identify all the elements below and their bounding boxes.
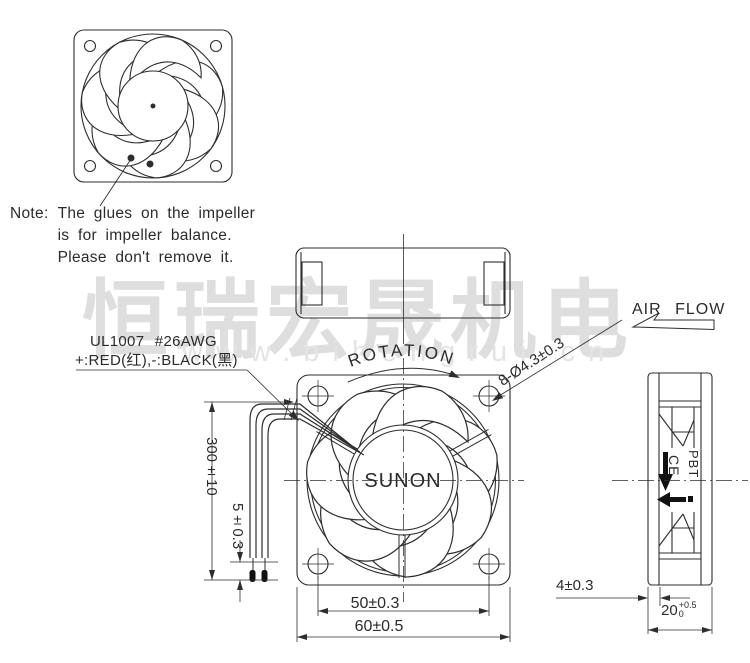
note-block: Note: The glues on the impeller is for i… [10,203,255,269]
brand-label: SUNON [364,470,441,492]
material-label: PBT [686,450,701,478]
note-line-1: The glues on the impeller [58,203,256,225]
note-line-2: is for impeller balance. [58,225,256,247]
air-flow-label: AIR FLOW [632,301,725,319]
dim-depth-value: 20 [661,602,678,619]
dim-depth-label: 20 +0.5 0 [661,601,696,619]
dim-flange-thickness-label: 4±0.3 [556,577,593,594]
rotation-label: ROTATION [345,341,457,371]
top-view [296,234,510,344]
front-view-fan [70,23,232,206]
wire-polarity-label: +:RED(红),-:BLACK(黑) [75,349,238,370]
dim-strip-length-label: 5±0.3 [229,503,246,549]
dim-hole-pitch-label: 50±0.3 [318,595,432,613]
fan-drawing-page: 恒瑞宏晟机电 www.bihengrui.cn [0,0,750,663]
airflow-direction-arrow-icon [657,492,693,507]
note-line-3: Please don't remove it. [58,247,256,269]
dim-frame-size-label: 60±0.5 [322,618,436,636]
dim-wire-length-label: 300±10 [203,437,220,496]
dim-depth-tol-lower: 0 [679,610,697,619]
technical-drawing: ROTATION [0,0,750,663]
main-view-fan: SUNON [284,358,524,602]
ce-mark-label: CE [666,455,682,476]
note-prefix: Note: [10,203,49,269]
side-view [612,373,748,585]
wire-spec-label: UL1007 #26AWG [90,333,217,350]
